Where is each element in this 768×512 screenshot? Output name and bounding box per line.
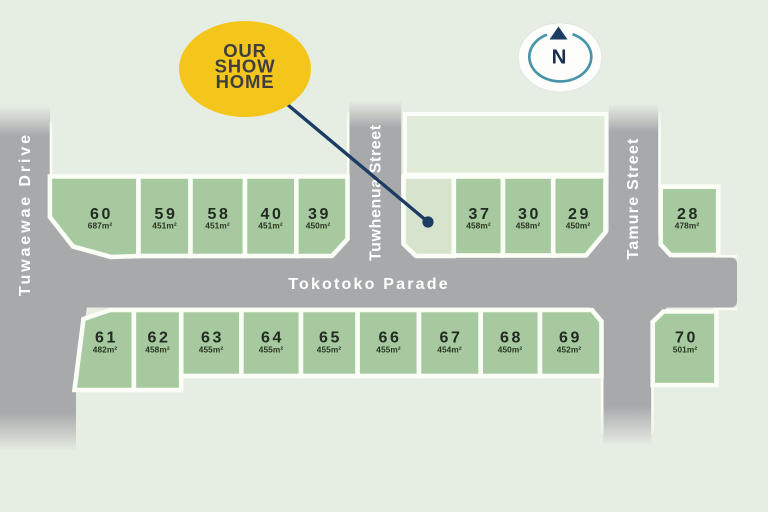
svg-text:455m²: 455m² — [199, 345, 224, 355]
svg-text:450m²: 450m² — [306, 221, 331, 231]
svg-text:455m²: 455m² — [259, 345, 284, 355]
svg-text:451m²: 451m² — [258, 221, 283, 231]
svg-text:451m²: 451m² — [205, 221, 230, 231]
svg-text:Tuwaewae Drive: Tuwaewae Drive — [17, 132, 34, 296]
svg-text:451m²: 451m² — [152, 221, 177, 231]
svg-text:455m²: 455m² — [317, 345, 342, 355]
svg-text:478m²: 478m² — [675, 221, 700, 231]
svg-text:458m²: 458m² — [516, 221, 541, 231]
svg-text:455m²: 455m² — [376, 345, 401, 355]
svg-text:458m²: 458m² — [145, 345, 170, 355]
svg-text:Tamure Street: Tamure Street — [625, 137, 642, 259]
svg-text:N: N — [552, 46, 567, 69]
svg-text:Tuwhenua Street: Tuwhenua Street — [368, 124, 385, 261]
svg-text:482m²: 482m² — [93, 345, 118, 355]
svg-text:450m²: 450m² — [498, 345, 523, 355]
svg-text:450m²: 450m² — [566, 221, 591, 231]
svg-text:HOME: HOME — [216, 71, 275, 92]
svg-text:454m²: 454m² — [437, 345, 462, 355]
svg-text:Tokotoko Parade: Tokotoko Parade — [288, 276, 450, 293]
svg-text:687m²: 687m² — [88, 221, 113, 231]
svg-text:501m²: 501m² — [673, 345, 698, 355]
svg-text:458m²: 458m² — [466, 221, 491, 231]
svg-text:452m²: 452m² — [557, 345, 582, 355]
